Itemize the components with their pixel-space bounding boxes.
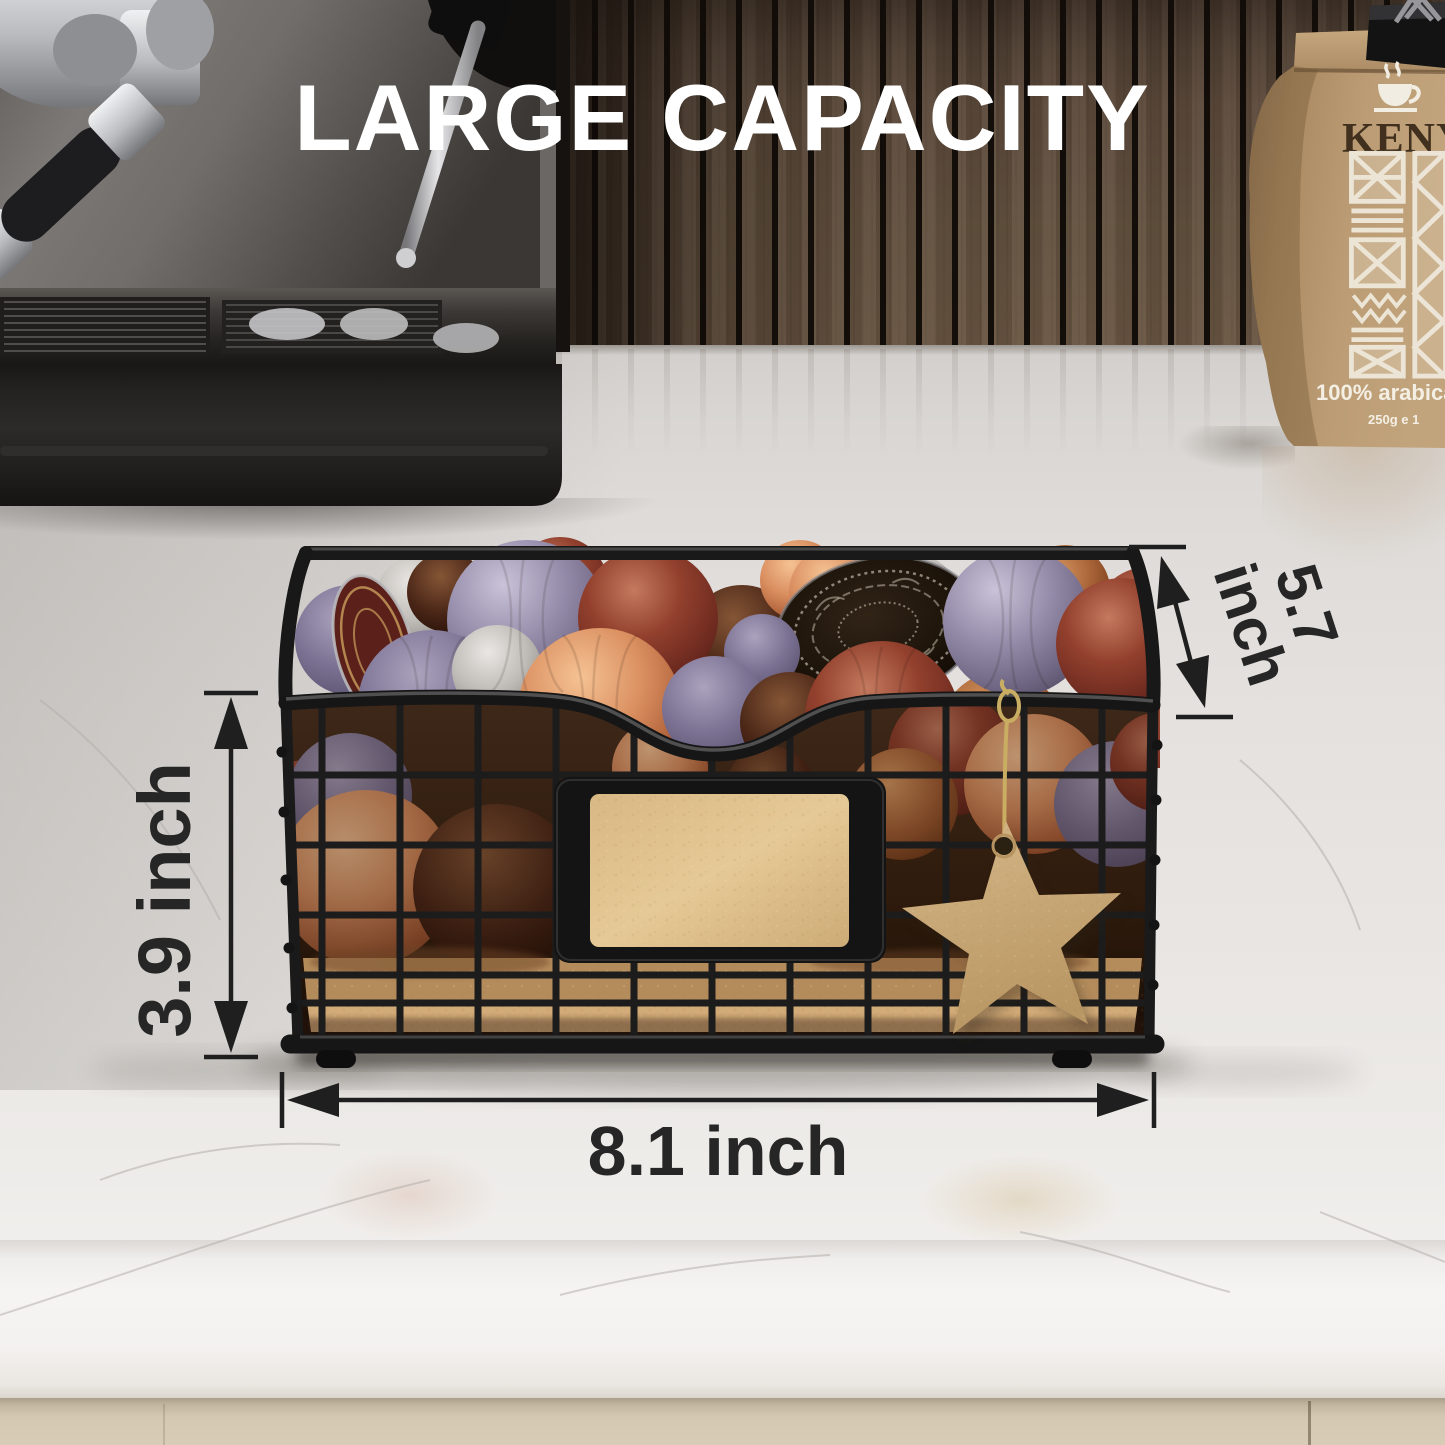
svg-text:8.1 inch: 8.1 inch <box>588 1112 849 1190</box>
svg-text:3.9 inch: 3.9 inch <box>123 762 206 1038</box>
